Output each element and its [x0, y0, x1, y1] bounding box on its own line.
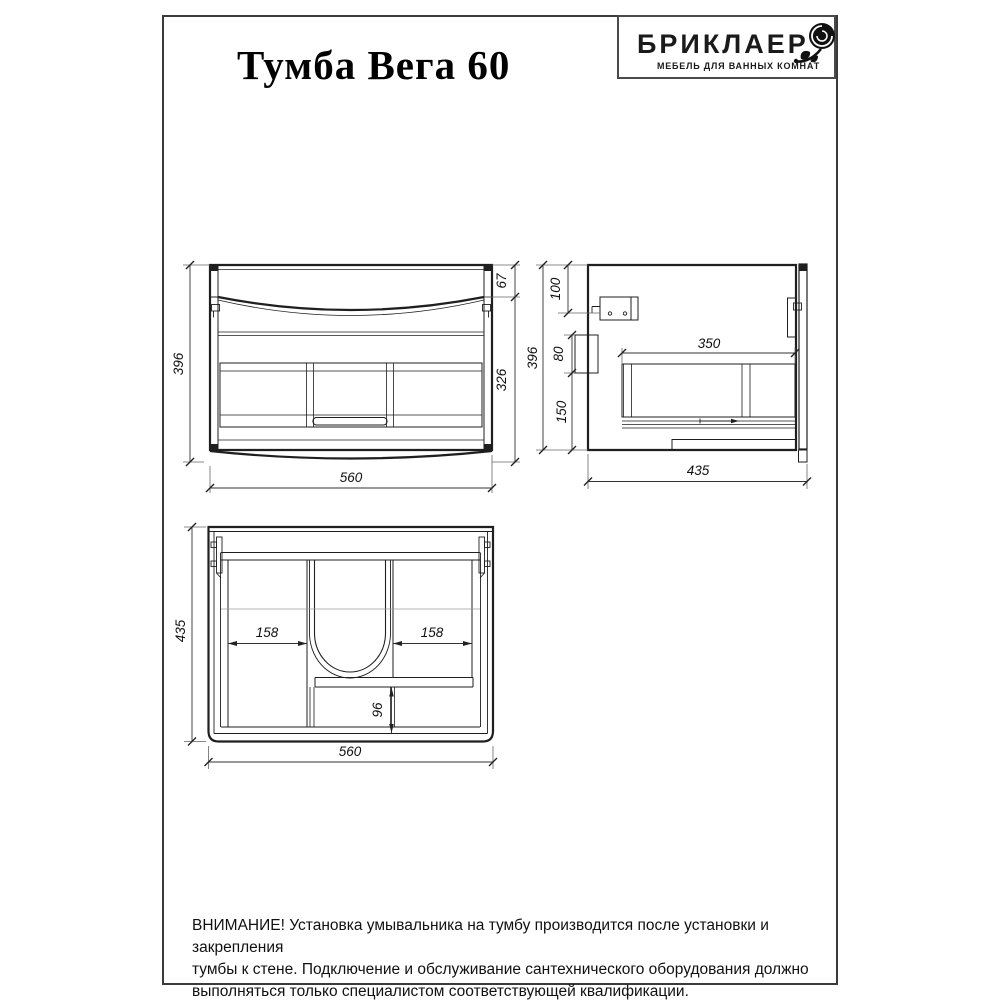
top-view-dim-extensions	[184, 527, 493, 769]
top-view-structure	[209, 532, 494, 734]
side-view-door-strip	[788, 264, 808, 462]
dim-label-front-lower-section: 326	[494, 368, 509, 391]
front-view-outline	[210, 265, 492, 459]
page: Тумба Вега 60 БРИКЛАЕР МЕБЕЛЬ ДЛЯ ВАННЫХ…	[0, 0, 1000, 1000]
side-view-drawer	[622, 364, 795, 450]
dim-label-top-depth: 435	[173, 619, 188, 642]
side-view-dim-extensions	[536, 265, 807, 489]
dim-label-front-top-section: 67	[494, 273, 509, 289]
dim-label-top-center-gap: 96	[370, 702, 385, 718]
side-view: 396 100 80 150 350 435	[525, 261, 811, 489]
warning-line-3: выполняться только специалистом соответс…	[192, 981, 822, 1000]
side-view-bracket	[575, 297, 638, 373]
dim-label-side-depth: 435	[687, 463, 710, 478]
dim-label-front-height: 396	[171, 352, 186, 375]
dim-label-side-lower-offset: 150	[554, 400, 569, 423]
top-view-sink-cutout	[310, 560, 391, 678]
front-view-caps	[210, 265, 492, 450]
dim-label-top-right-drawer: 158	[421, 625, 444, 640]
dim-label-side-drawer-width: 350	[698, 336, 721, 351]
top-view: 435 158 158 96 560	[173, 523, 497, 769]
top-view-brackets	[211, 537, 490, 578]
technical-drawing: 396 67 326 560	[0, 0, 1000, 1000]
door-strip-cap	[799, 264, 807, 271]
warning-line-2: тумбы к стене. Подключение и обслуживани…	[192, 959, 822, 981]
wall-bracket	[575, 335, 598, 373]
dim-label-side-height: 396	[525, 346, 540, 369]
drawer-handle	[313, 418, 387, 426]
dim-label-side-bracket-offset: 100	[548, 277, 563, 300]
warning-line-1: ВНИМАНИЕ! Установка умывальника на тумбу…	[192, 915, 822, 959]
slide-rail-arrow	[700, 419, 736, 424]
warning-note: ВНИМАНИЕ! Установка умывальника на тумбу…	[192, 915, 822, 1000]
front-view: 396 67 326 560	[171, 261, 520, 493]
front-view-dim-ticks	[186, 261, 519, 492]
dim-label-top-width: 560	[339, 744, 362, 759]
top-view-outline	[209, 527, 494, 742]
front-view-structure	[210, 265, 492, 450]
dim-label-side-bracket-height: 80	[551, 346, 566, 362]
dim-label-front-width: 560	[340, 470, 363, 485]
side-view-outline	[588, 265, 796, 450]
front-view-drawer-box	[220, 363, 482, 427]
dim-label-top-left-drawer: 158	[256, 625, 279, 640]
